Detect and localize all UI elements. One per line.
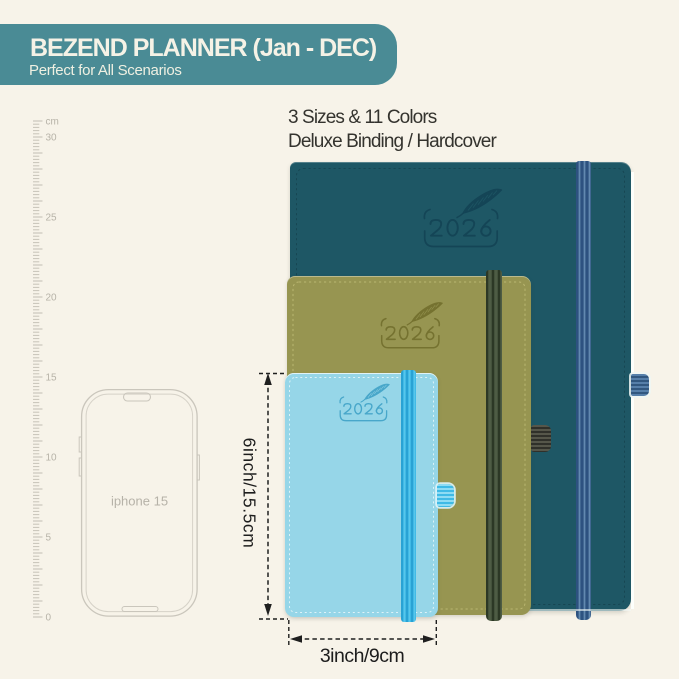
svg-text:iphone 15: iphone 15 — [111, 494, 168, 509]
svg-text:30: 30 — [46, 132, 58, 143]
svg-text:25: 25 — [46, 212, 58, 223]
svg-text:15: 15 — [46, 372, 58, 383]
svg-text:0: 0 — [46, 612, 52, 623]
svg-text:20: 20 — [46, 292, 58, 303]
svg-text:5: 5 — [46, 532, 52, 543]
svg-text:cm: cm — [46, 116, 59, 127]
svg-text:10: 10 — [46, 452, 58, 463]
